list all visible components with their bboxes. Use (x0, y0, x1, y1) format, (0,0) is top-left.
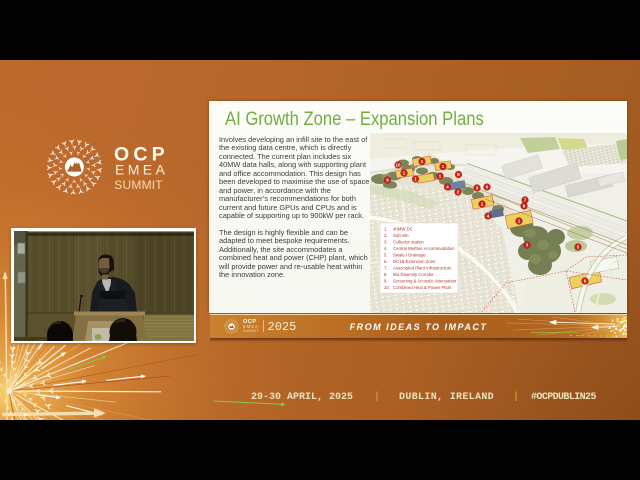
svg-text:1.: 1. (384, 227, 388, 232)
svg-text:Associated Plant Infrastructur: Associated Plant Infrastructure (393, 266, 452, 271)
svg-text:6.: 6. (384, 259, 388, 264)
svg-text:EMEA: EMEA (115, 161, 168, 177)
svg-text:3.: 3. (384, 240, 388, 245)
svg-text:Bio-Diversity Corridor: Bio-Diversity Corridor (393, 272, 434, 277)
svg-text:Combined Heat & Power Plant: Combined Heat & Power Plant (393, 285, 452, 290)
svg-text:Central Welfare Accommodation: Central Welfare Accommodation (393, 246, 455, 251)
svg-text:7.: 7. (384, 266, 388, 271)
svg-text:2.: 2. (384, 233, 388, 238)
svg-text:8.: 8. (384, 272, 388, 277)
svg-text:Swale / Drainage: Swale / Drainage (393, 253, 426, 258)
svg-text:4.: 4. (384, 246, 388, 251)
svg-text:Screening & Acoustic Attenuati: Screening & Acoustic Attenuation (393, 279, 457, 284)
svg-text:Sub-Stn: Sub-Stn (393, 233, 409, 238)
svg-text:5.: 5. (384, 253, 388, 258)
svg-text:9.: 9. (384, 279, 388, 284)
svg-text:10.: 10. (384, 285, 390, 290)
svg-text:SUMMIT: SUMMIT (114, 178, 163, 192)
svg-text:10: 10 (396, 163, 401, 168)
svg-text:DC1& Extension Zone: DC1& Extension Zone (393, 259, 436, 264)
svg-text:Collector station: Collector station (393, 240, 424, 245)
svg-text:40MW DC: 40MW DC (393, 227, 413, 232)
